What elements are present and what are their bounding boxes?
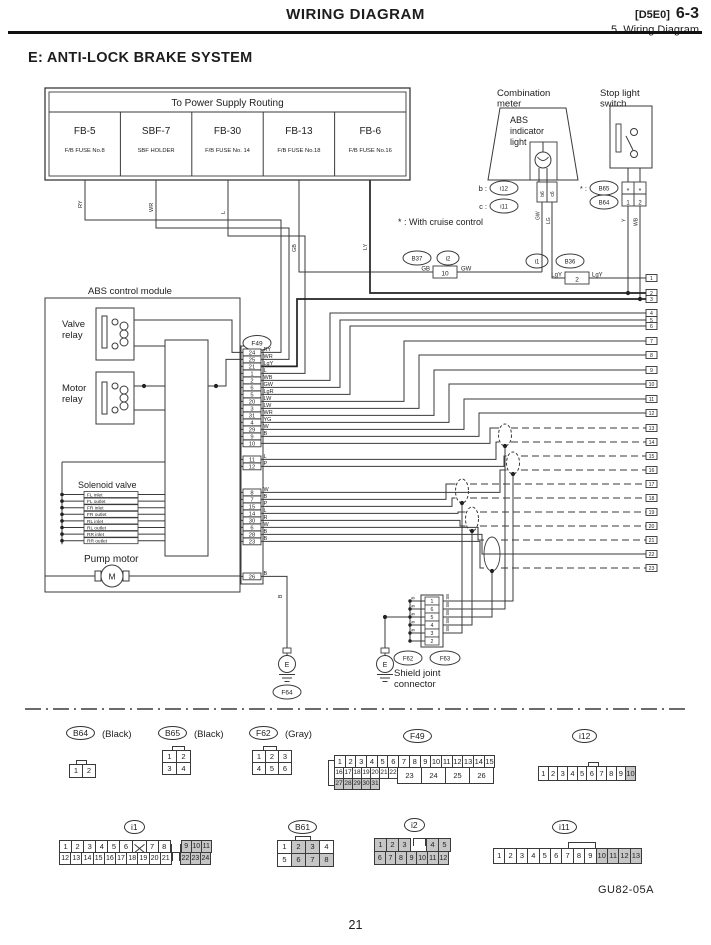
pin-star: *	[639, 188, 642, 195]
connector-name: F49	[251, 341, 263, 348]
f49-wire-color: W	[264, 424, 270, 430]
terminal-number: 7	[650, 339, 653, 345]
inline-pin: 2	[575, 277, 579, 284]
shield-pin-number: 3	[431, 631, 434, 637]
pin-cell: 2	[291, 840, 306, 854]
wire-color: B	[411, 605, 416, 608]
inline-pin: 10	[441, 271, 449, 278]
terminal-number: 13	[649, 426, 655, 432]
terminal-number: 23	[649, 566, 655, 572]
pin-cell: 2	[82, 764, 96, 778]
wire-color: LgY	[592, 273, 603, 279]
pin-cell: 4	[176, 762, 191, 775]
connector-oval-i1: i1	[124, 820, 145, 834]
solenoid-label: FL outlet	[87, 499, 106, 505]
solenoid-valve-label: Solenoid valve	[78, 480, 137, 490]
connector-pins-i2-row2: 6789101112	[375, 851, 449, 865]
document-code: GU82-05A	[598, 884, 654, 896]
keyway-notch-icon	[171, 852, 181, 865]
terminal-number: 11	[649, 397, 654, 403]
labels-layer: To Power Supply Routing FB-5 SBF-7 FB-30…	[62, 88, 642, 697]
f49-wire-color: B	[264, 529, 268, 535]
terminal-number: 19	[649, 510, 655, 516]
terminal-number: 1	[650, 276, 653, 282]
f49-pin-number: 23	[249, 540, 255, 546]
terminal-number: 14	[649, 440, 655, 446]
page-number: 21	[0, 918, 711, 932]
motor-relay-label: Motor	[62, 383, 86, 394]
solenoid-label: RR outlet	[87, 539, 108, 545]
f49-wire-color: R	[264, 515, 268, 521]
pin-cell: 10	[625, 766, 636, 781]
fuse-sub: SBF HOLDER	[138, 148, 175, 154]
f49-wire-color: LgR	[264, 389, 274, 395]
connector-oval-b61: B61	[288, 820, 317, 834]
junction-dots	[142, 291, 642, 619]
f49-wire-color: WR	[264, 354, 273, 360]
wire-color: B	[411, 613, 416, 616]
terminal-number: 3	[650, 297, 653, 303]
motor-relay-label: relay	[62, 394, 83, 405]
wire-color: SB	[445, 594, 450, 600]
f49-wire-color: GW	[264, 382, 274, 388]
connector-oval-b65: B65	[158, 726, 187, 740]
abs-module-label: ABS control module	[88, 286, 172, 297]
wire-color: LG	[546, 217, 552, 224]
wire-color: LY	[363, 243, 369, 250]
pin-id: c6	[550, 191, 556, 197]
shield-pin-number: 4	[431, 623, 434, 629]
wire-color: RY	[78, 200, 84, 208]
pin-cell: 13	[630, 848, 642, 864]
f49-wire-color: B	[264, 431, 268, 437]
connector-name: i2	[446, 257, 451, 263]
f49-wire-color: P	[264, 461, 268, 467]
power-routing-title: To Power Supply Routing	[171, 98, 283, 109]
f49-wire-color: WR	[264, 410, 273, 416]
connector-oval-f62: F62	[249, 726, 278, 740]
f49-wire-color: L	[264, 368, 267, 374]
f49-wire-color: LW	[264, 396, 273, 402]
terminal-number: 20	[649, 524, 655, 530]
connector-color: (Black)	[194, 729, 224, 740]
pin-cell: 1	[277, 840, 292, 854]
pin-cell: 7	[305, 853, 320, 867]
connector-pins-b65-row2: 34	[163, 762, 191, 775]
wire-color: WB	[634, 217, 640, 226]
pin-cell: 5	[265, 762, 279, 775]
pin-cell: 23	[397, 767, 422, 784]
combination-meter-label: meter	[497, 99, 521, 110]
f49-wire-color: W	[264, 522, 270, 528]
fuse-sub: F/B FUSE No.16	[349, 148, 392, 154]
connector-pins-i12: 123456789 10	[539, 766, 636, 781]
solenoid-label: FR inlet	[87, 506, 104, 512]
terminal-number: 12	[649, 411, 655, 417]
pin-cell: 6	[278, 762, 292, 775]
terminal-number: 18	[649, 496, 655, 502]
wire-color: L	[221, 211, 227, 214]
pin-cell: 12	[438, 851, 450, 865]
connector-oval-b64: B64	[66, 726, 95, 740]
terminal-number: 9	[650, 368, 653, 374]
wire-color: GB	[292, 244, 298, 252]
f49-pin-number: 26	[249, 575, 255, 581]
wire-color: GW	[536, 211, 542, 220]
f49-wire-color: L	[264, 508, 267, 514]
connector-pins-f62-row2: 456	[253, 762, 292, 775]
abs-indicator-label: ABS	[510, 115, 528, 125]
pin-cell: 24	[200, 852, 211, 865]
fuse-name: FB-6	[359, 126, 381, 137]
fuse-name: FB-30	[214, 126, 242, 137]
f49-wire-color: LW	[264, 403, 273, 409]
solenoid-label: RL outlet	[87, 525, 107, 531]
wire-color: LgY	[551, 273, 562, 279]
connector-name: i12	[500, 187, 509, 193]
pump-motor-label: Pump motor	[84, 554, 139, 565]
fuse-sub: F/B FUSE No. 14	[205, 148, 251, 154]
shield-joint-label: connector	[394, 679, 436, 690]
combination-meter-label: Combination	[497, 88, 550, 99]
pin-cell: 5	[277, 853, 292, 867]
f49-pin-number: 12	[249, 465, 255, 471]
shield-pin-number: 6	[431, 607, 434, 613]
pin-cell: 3	[162, 762, 177, 775]
pin-cell: 3	[398, 838, 411, 852]
row-prefix: c :	[479, 202, 487, 211]
pin-cell: 26	[469, 767, 494, 784]
f49-wire-color: WB	[264, 375, 273, 381]
shield-pin-number: 5	[431, 615, 434, 621]
connector-oval-i2: i2	[404, 818, 425, 832]
pin-cell: 3	[305, 840, 320, 854]
pin-id: b6	[540, 191, 546, 197]
terminal-number: 16	[649, 468, 655, 474]
f49-wire-color: W	[264, 487, 270, 493]
connector-pins-b61-row1: 1 23 4	[278, 840, 334, 854]
connector-name: F64	[281, 690, 293, 697]
row-prefix: b :	[479, 184, 487, 193]
ground-symbol: E	[383, 662, 388, 669]
f49-wire-color: RY	[264, 347, 272, 353]
wire-color: GB	[421, 267, 430, 273]
terminal-number: 6	[650, 324, 653, 330]
terminal-number: 22	[649, 552, 655, 558]
shield-joint-label: Shield joint	[394, 668, 441, 679]
f49-pin-number: 10	[249, 442, 255, 448]
connector-color: (Black)	[102, 729, 132, 740]
f49-wire-color: B	[264, 494, 268, 500]
connector-name: B65	[599, 187, 610, 193]
solenoid-label: FL inlet	[87, 492, 103, 498]
pin-cell: 31	[370, 778, 380, 790]
fuse-name: SBF-7	[142, 126, 171, 137]
connector-pins-i2-row1: 123 45	[375, 838, 451, 852]
wire-color: B	[411, 597, 416, 600]
terminal-number: 17	[649, 482, 655, 488]
pin-cell: 1	[69, 764, 83, 778]
connector-pins-b64: 12	[70, 764, 96, 778]
manual-page: WIRING DIAGRAM [D5E0]6-3 5. Wiring Diagr…	[0, 0, 711, 945]
pin-cell: 6	[291, 853, 306, 867]
pin-cell: 4	[319, 840, 334, 854]
valve-relay-label: Valve	[62, 319, 85, 330]
shield-pin-number: 2	[431, 639, 434, 645]
f49-wire-color: YG	[264, 417, 272, 423]
stop-light-switch-label: switch	[600, 99, 626, 110]
wires-layer	[25, 142, 688, 709]
fuse-name: FB-5	[74, 126, 96, 137]
ground-symbol: E	[285, 662, 290, 669]
cruise-note: * : With cruise control	[398, 217, 483, 227]
connector-name: i1	[535, 260, 540, 266]
connector-pins-i1-row2: 12131415161718192021 222324	[60, 852, 211, 865]
fuse-sub: F/B FUSE No.8	[65, 148, 105, 154]
wire-color: B	[411, 621, 416, 624]
wire-color: SB	[445, 610, 450, 616]
f49-wire-color: B	[264, 536, 268, 542]
connector-oval-f49: F49	[403, 729, 432, 743]
shield-pin-number: 1	[431, 599, 434, 605]
wire-color: B	[411, 629, 416, 632]
connector-name: B37	[412, 257, 423, 263]
f49-wire-color: L	[264, 454, 267, 460]
wire-color: Y	[622, 218, 628, 222]
star-prefix: * :	[580, 184, 587, 193]
stop-light-switch-label: Stop light	[600, 88, 640, 99]
connector-name: B64	[599, 201, 610, 207]
connector-oval-i11: i11	[552, 820, 577, 834]
pin-star: *	[627, 188, 630, 195]
keyway-notch-icon	[411, 838, 427, 852]
fuse-sub: F/B FUSE No.18	[277, 148, 320, 154]
solenoid-label: FR outlet	[87, 512, 107, 518]
wire-color: SB	[445, 602, 450, 608]
connector-pins-b61-row2: 5 678	[278, 853, 334, 867]
abs-indicator-label: indicator	[510, 126, 544, 136]
connector-pins-i11: 123456789 10111213	[494, 848, 642, 864]
terminal-number: 10	[649, 382, 655, 388]
pin-cell: 25	[445, 767, 470, 784]
terminal-number: 8	[650, 353, 653, 359]
f49-wire-color: B	[264, 571, 268, 577]
connector-name: F63	[440, 657, 451, 663]
wire-color: B	[278, 594, 284, 598]
pin-cell: 4	[252, 762, 266, 775]
f49-wire-color: P	[264, 501, 268, 507]
solenoid-label: RR inlet	[87, 532, 105, 538]
connector-name: F62	[403, 657, 414, 663]
connector-pins-f49-row3: 2728293031	[335, 778, 380, 790]
fuse-name: FB-13	[285, 126, 313, 137]
terminal-number: 21	[649, 538, 655, 544]
connector-name: i11	[500, 205, 508, 211]
wire-color: SB	[445, 618, 450, 624]
connector-name: B36	[565, 260, 576, 266]
pin-cell: 5	[438, 838, 451, 852]
solenoid-label: RL inlet	[87, 519, 104, 525]
wire-color: SB	[445, 626, 450, 632]
valve-relay-label: relay	[62, 330, 83, 341]
f49-wire-color: LgY	[264, 361, 274, 367]
pin-cell: 8	[319, 853, 334, 867]
connector-color: (Gray)	[285, 729, 312, 740]
wire-color: WR	[149, 203, 155, 212]
terminal-number: 15	[649, 454, 655, 460]
motor-symbol: M	[108, 572, 115, 582]
wire-color: GW	[461, 267, 472, 273]
pin-cell: 24	[421, 767, 446, 784]
abs-indicator-label: light	[510, 137, 527, 147]
wiring-diagram: To Power Supply Routing FB-5 SBF-7 FB-30…	[0, 0, 711, 945]
components-layer	[45, 88, 652, 699]
